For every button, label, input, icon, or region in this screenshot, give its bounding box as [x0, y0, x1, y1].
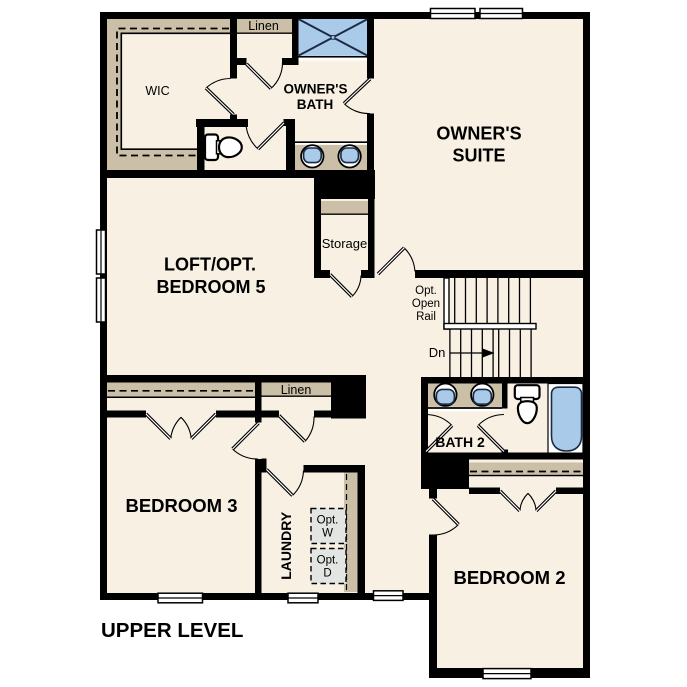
svg-text:WIC: WIC — [145, 84, 169, 98]
svg-text:OWNER'S: OWNER'S — [284, 82, 348, 97]
svg-text:Dn: Dn — [429, 345, 446, 360]
svg-text:Open: Open — [412, 298, 440, 310]
svg-text:BEDROOM 2: BEDROOM 2 — [453, 567, 565, 588]
svg-text:UPPER LEVEL: UPPER LEVEL — [101, 619, 243, 642]
svg-text:Storage: Storage — [322, 236, 368, 251]
svg-text:Linen: Linen — [248, 19, 279, 33]
svg-text:Rail: Rail — [416, 311, 436, 323]
svg-text:BEDROOM 3: BEDROOM 3 — [125, 495, 237, 516]
svg-text:LAUNDRY: LAUNDRY — [278, 511, 294, 580]
svg-text:BATH 2: BATH 2 — [435, 434, 485, 450]
svg-text:BATH: BATH — [297, 97, 334, 112]
svg-text:LOFT/OPT.: LOFT/OPT. — [164, 255, 256, 275]
svg-text:Opt.: Opt. — [317, 555, 339, 567]
svg-text:Linen: Linen — [281, 383, 312, 397]
svg-text:W: W — [322, 528, 333, 540]
svg-text:BEDROOM 5: BEDROOM 5 — [156, 277, 265, 297]
svg-text:SUITE: SUITE — [452, 146, 505, 166]
svg-text:OWNER'S: OWNER'S — [436, 124, 521, 144]
svg-text:Opt.: Opt. — [415, 285, 437, 297]
svg-text:Opt.: Opt. — [317, 515, 339, 527]
svg-text:D: D — [323, 568, 331, 580]
